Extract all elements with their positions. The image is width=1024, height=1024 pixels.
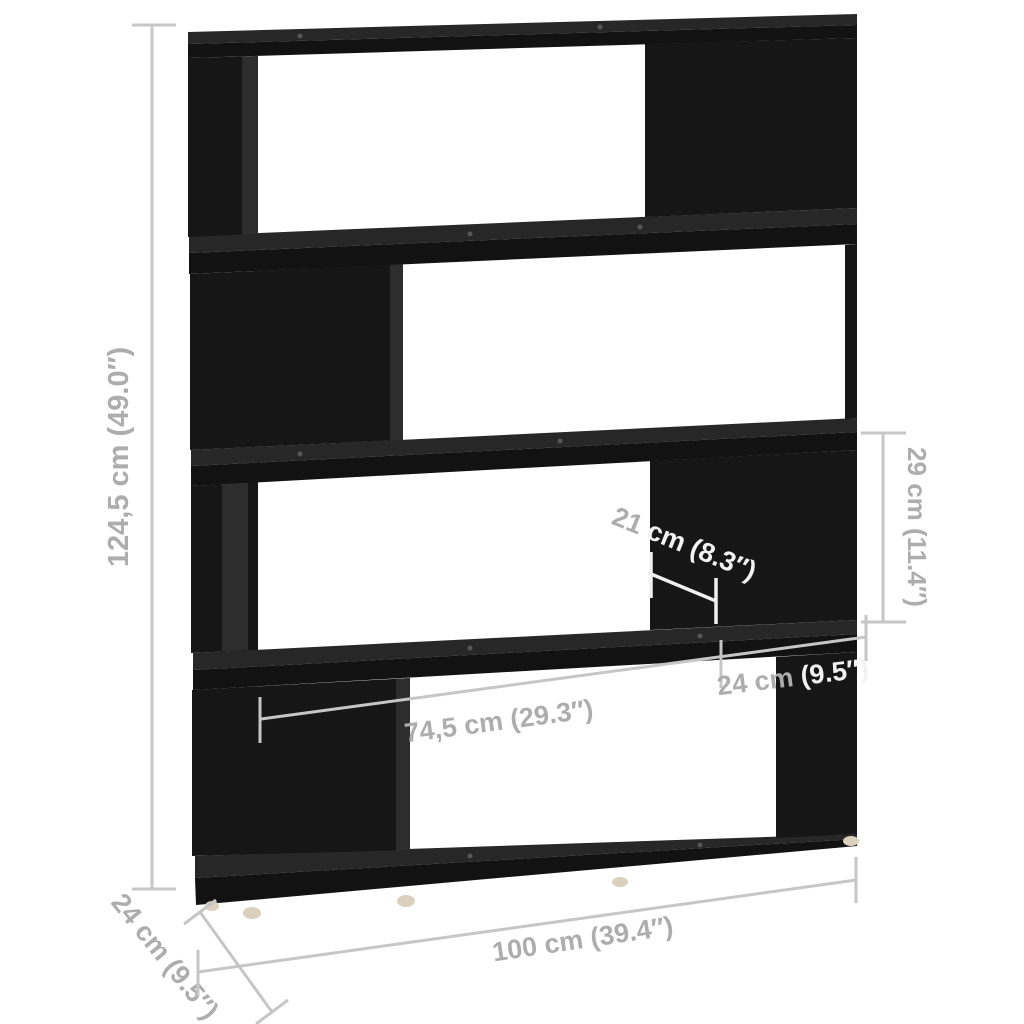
row1-right-panel bbox=[645, 38, 857, 217]
height-dimension: 124,5 cm (49.0″) bbox=[103, 25, 176, 889]
screw-dot bbox=[298, 34, 303, 39]
row4-left-panel-inner-face bbox=[396, 678, 410, 851]
screw-dot bbox=[468, 232, 473, 237]
row2-left-panel bbox=[190, 264, 403, 450]
depth-dimension-tick-bottom bbox=[256, 1000, 288, 1024]
screw-dot bbox=[298, 452, 303, 457]
screw-dot bbox=[468, 646, 473, 651]
row2-left-panel-inner-face bbox=[390, 264, 403, 441]
inner-width-dimension-label: 74,5 cm (29.3″) bbox=[403, 694, 595, 749]
height-dimension-label: 124,5 cm (49.0″) bbox=[103, 347, 135, 567]
screw-dot bbox=[468, 854, 473, 859]
row3-left-end-panel-inner-face bbox=[222, 483, 248, 651]
foot bbox=[843, 836, 859, 846]
screw-dot bbox=[598, 25, 603, 30]
opening-height-dimension: 29 cm (11.4″) bbox=[861, 433, 932, 622]
bookshelf-dimension-illustration: 124,5 cm (49.0″) 24 cm (9.5″) 100 cm (39… bbox=[0, 0, 1024, 1024]
foot bbox=[612, 877, 628, 887]
foot bbox=[243, 907, 261, 919]
screw-dot bbox=[698, 634, 703, 639]
screw-dot bbox=[558, 439, 563, 444]
screw-dot bbox=[698, 843, 703, 848]
foot bbox=[397, 895, 415, 907]
bookshelf-illustration bbox=[188, 14, 859, 919]
opening-height-dimension-label: 29 cm (11.4″) bbox=[902, 447, 932, 607]
row1-left-end-panel-inner-face bbox=[242, 56, 258, 235]
shelf-board-1 bbox=[189, 208, 857, 274]
dimension-diagram: 124,5 cm (49.0″) 24 cm (9.5″) 100 cm (39… bbox=[0, 0, 1024, 1024]
row2-right-end-strip bbox=[845, 244, 857, 419]
screw-dot bbox=[638, 225, 643, 230]
